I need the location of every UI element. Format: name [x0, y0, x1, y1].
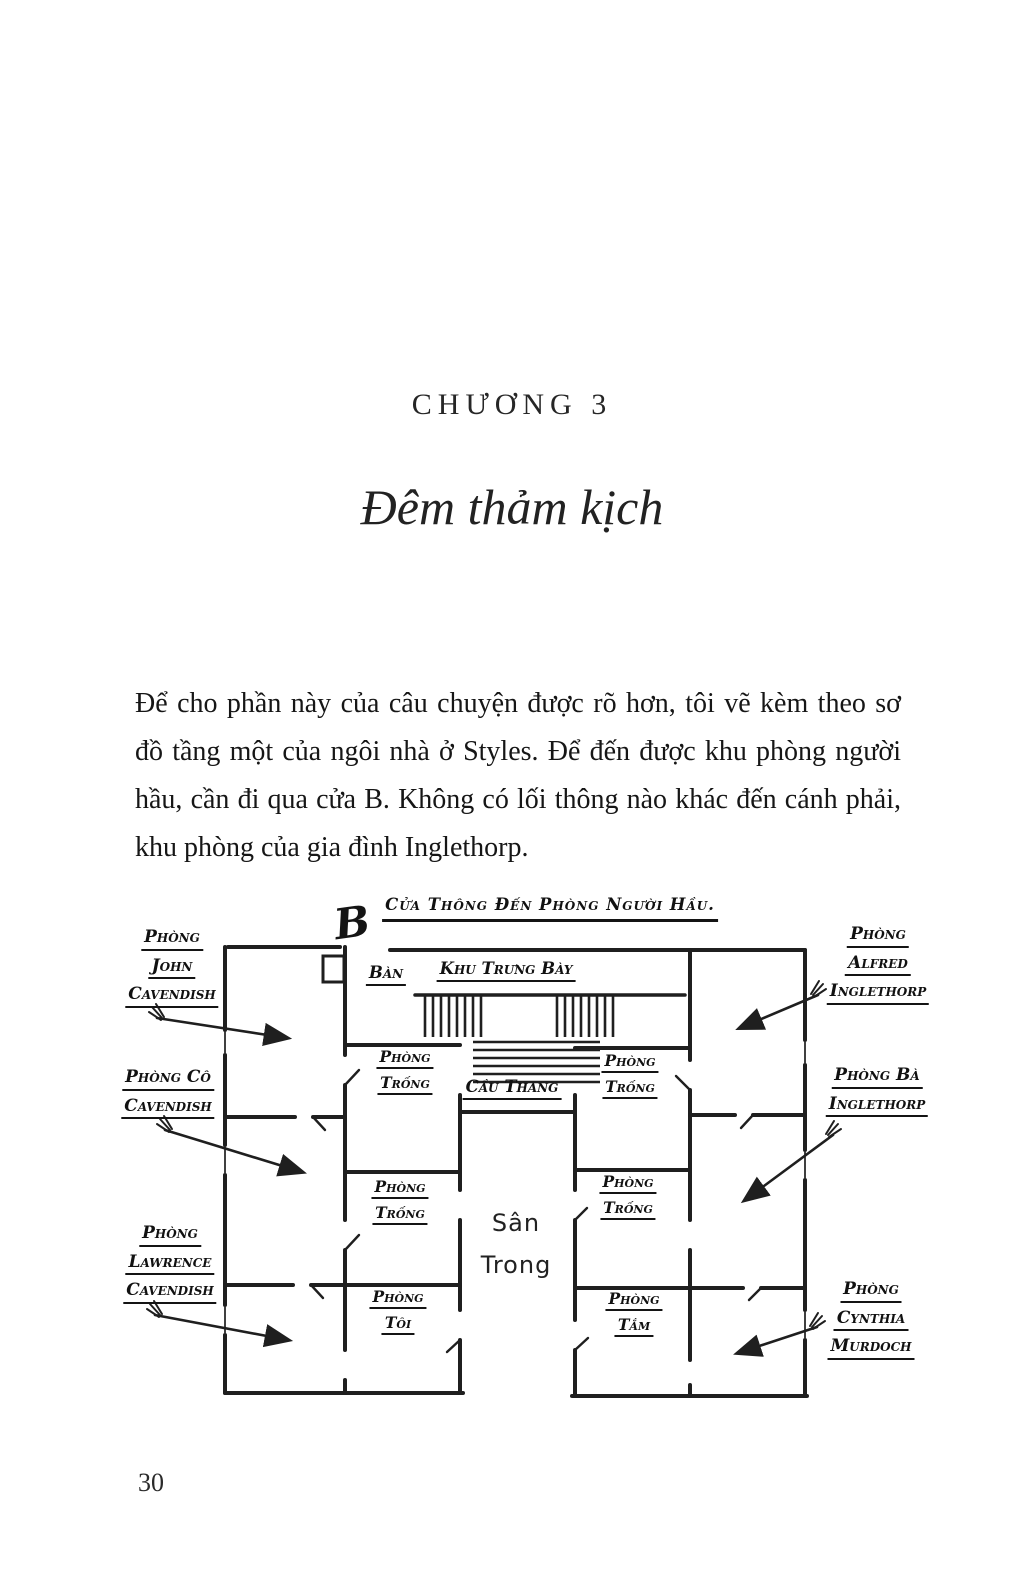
label-line: Phòng: [601, 1052, 658, 1073]
label-line: Trống: [602, 1078, 658, 1099]
label-line: Murdoch: [827, 1337, 914, 1360]
gallery-balusters: [425, 995, 613, 1037]
gallery-label: Khu Trưng Bày: [437, 960, 576, 985]
room-label-mrs-inglethorp: Phòng Bà Inglethorp: [826, 1066, 928, 1123]
staircase-label: Cầu Thang: [463, 1078, 562, 1103]
label-line: Trong: [481, 1244, 552, 1286]
room-label-john-cavendish: Phòng John Cavendish: [125, 928, 218, 1014]
label-line: Phòng: [847, 925, 909, 948]
room-label-empty-1-right: Phòng Trống: [601, 1052, 658, 1104]
courtyard-label: Sân Trong: [481, 1202, 552, 1286]
label-line: Phòng Cô: [122, 1068, 214, 1091]
table-icon: [323, 956, 344, 982]
book-page: CHƯƠNG 3 Đêm thảm kịch Để cho phần này c…: [0, 0, 1024, 1575]
room-label-miss-cavendish: Phòng Cô Cavendish: [121, 1068, 214, 1125]
page-number: 30: [138, 1468, 164, 1498]
label-line: Inglethorp: [826, 1095, 928, 1118]
room-label-alfred-inglethorp: Phòng Alfred Inglethorp: [827, 925, 929, 1011]
label-line: Lawrence: [126, 1253, 215, 1276]
label-line: Cavendish: [125, 985, 218, 1008]
chapter-title: Đêm thảm kịch: [0, 478, 1024, 536]
label-line: Phòng: [139, 1224, 201, 1247]
label-line: Tắm: [615, 1316, 653, 1337]
label-line: Sân: [481, 1202, 552, 1244]
building-walls: [225, 947, 807, 1396]
label-line: Phòng: [369, 1288, 426, 1309]
label-line: Cavendish: [123, 1281, 216, 1304]
label-line: Khu Trưng Bày: [437, 960, 576, 982]
room-label-empty-2-right: Phòng Trống: [599, 1173, 656, 1225]
room-label-my-room: Phòng Tôi: [369, 1288, 426, 1340]
label-line: John: [149, 957, 196, 980]
label-line: Inglethorp: [827, 982, 929, 1005]
label-line: Trống: [377, 1074, 433, 1095]
room-label-empty-2-left: Phòng Trống: [371, 1178, 428, 1230]
label-line: Phòng: [599, 1173, 656, 1194]
label-line: Phòng: [840, 1280, 902, 1303]
label-line: Phòng: [605, 1290, 662, 1311]
annotation-arrows: [147, 981, 841, 1353]
label-line: Phòng: [371, 1178, 428, 1199]
body-paragraph: Để cho phần này của câu chuyện được rõ h…: [135, 680, 901, 872]
room-label-cynthia-murdoch: Phòng Cynthia Murdoch: [827, 1280, 914, 1366]
label-line: Phòng Bà: [831, 1066, 922, 1089]
floor-plan-diagram: B Cửa Thông Đến Phòng Người Hầu. Bàn Khu…: [95, 890, 935, 1420]
door-b-letter: B: [331, 896, 373, 949]
label-line: Cửa Thông Đến Phòng Người Hầu.: [382, 896, 718, 922]
table-label: Bàn: [366, 964, 406, 989]
label-line: Trống: [372, 1204, 428, 1225]
label-line: Cynthia: [834, 1309, 908, 1332]
label-line: Bàn: [366, 964, 406, 986]
label-line: Phòng: [141, 928, 203, 951]
room-label-bathroom: Phòng Tắm: [605, 1290, 662, 1342]
label-line: Trống: [600, 1199, 656, 1220]
room-label-empty-1-left: Phòng Trống: [376, 1048, 433, 1100]
label-line: Cầu Thang: [463, 1078, 562, 1100]
room-label-lawrence-cavendish: Phòng Lawrence Cavendish: [123, 1224, 216, 1310]
label-line: Cavendish: [121, 1097, 214, 1120]
label-line: Alfred: [845, 954, 911, 977]
servants-door-label: Cửa Thông Đến Phòng Người Hầu.: [382, 896, 718, 925]
label-line: Phòng: [376, 1048, 433, 1069]
chapter-heading: CHƯƠNG 3: [0, 388, 1024, 422]
label-line: Tôi: [382, 1314, 414, 1335]
